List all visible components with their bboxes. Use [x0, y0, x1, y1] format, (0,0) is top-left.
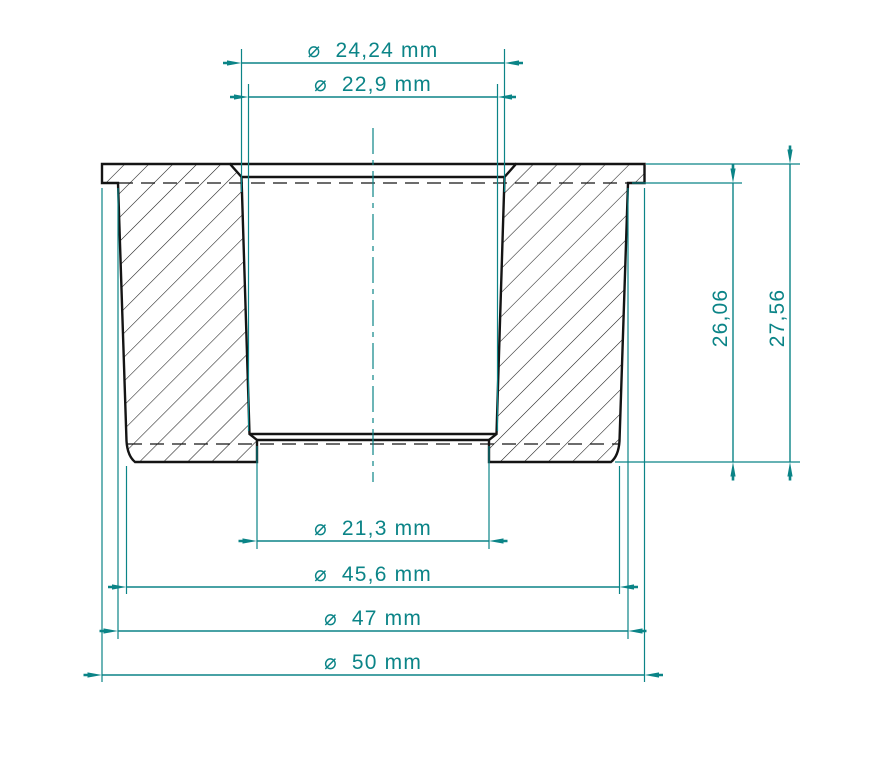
dim-label-height-26-06: 26,06 [709, 289, 732, 348]
dim-label-height-27-56: 27,56 [766, 289, 789, 348]
left-wall-section [102, 164, 257, 462]
dim-label-diameter-45-6: ⌀ 45,6 mm [314, 563, 432, 586]
dim-label-diameter-47: ⌀ 47 mm [324, 607, 422, 630]
dim-label-diameter-24-24: ⌀ 24,24 mm [308, 39, 439, 62]
dim-label-diameter-50: ⌀ 50 mm [324, 651, 422, 674]
right-wall-section [489, 164, 645, 462]
dim-label-diameter-21-3: ⌀ 21,3 mm [314, 517, 432, 540]
engineering-drawing: ⌀ 24,24 mm ⌀ 22,9 mm ⌀ 21,3 mm ⌀ 45,6 mm… [0, 0, 875, 768]
dim-label-diameter-22-9: ⌀ 22,9 mm [314, 73, 432, 96]
